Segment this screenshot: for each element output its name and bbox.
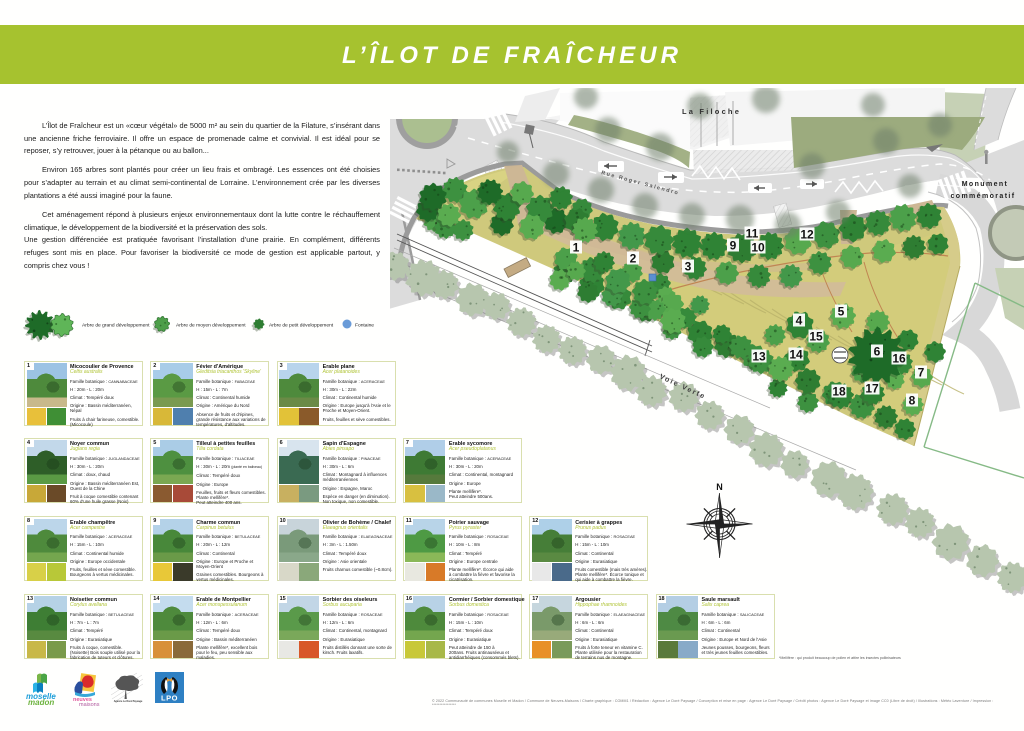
svg-text:6: 6: [874, 345, 881, 359]
svg-text:2: 2: [630, 252, 637, 266]
svg-text:1: 1: [573, 241, 580, 255]
svg-text:14: 14: [789, 348, 803, 362]
svg-text:4: 4: [796, 314, 803, 328]
svg-text:5: 5: [838, 305, 845, 319]
svg-text:La Filoche: La Filoche: [682, 107, 741, 116]
svg-text:8: 8: [909, 394, 916, 408]
svg-text:Arbre de petit développement: Arbre de petit développement: [269, 323, 334, 329]
svg-text:Arbre de grand développement: Arbre de grand développement: [82, 323, 150, 329]
svg-text:Monument: Monument: [962, 181, 1009, 188]
svg-text:17: 17: [865, 382, 879, 396]
svg-text:15: 15: [809, 330, 823, 344]
svg-text:18: 18: [832, 385, 846, 399]
svg-text:10: 10: [751, 241, 765, 255]
svg-text:3: 3: [685, 260, 692, 274]
svg-text:maisons: maisons: [79, 702, 100, 708]
svg-text:16: 16: [892, 352, 906, 366]
svg-text:12: 12: [800, 228, 814, 242]
svg-text:madon: madon: [28, 698, 54, 707]
svg-text:commémoratif: commémoratif: [950, 193, 1015, 200]
svg-text:LPO: LPO: [161, 694, 178, 703]
svg-text:Arbre de moyen développement: Arbre de moyen développement: [176, 323, 246, 329]
svg-text:N: N: [716, 482, 723, 492]
svg-text:11: 11: [746, 227, 759, 241]
svg-text:9: 9: [730, 239, 737, 253]
svg-text:7: 7: [918, 366, 925, 380]
svg-text:Agence Le Doré Paysage: Agence Le Doré Paysage: [114, 700, 143, 703]
svg-text:13: 13: [752, 350, 766, 364]
svg-text:Fontaine: Fontaine: [355, 323, 374, 329]
